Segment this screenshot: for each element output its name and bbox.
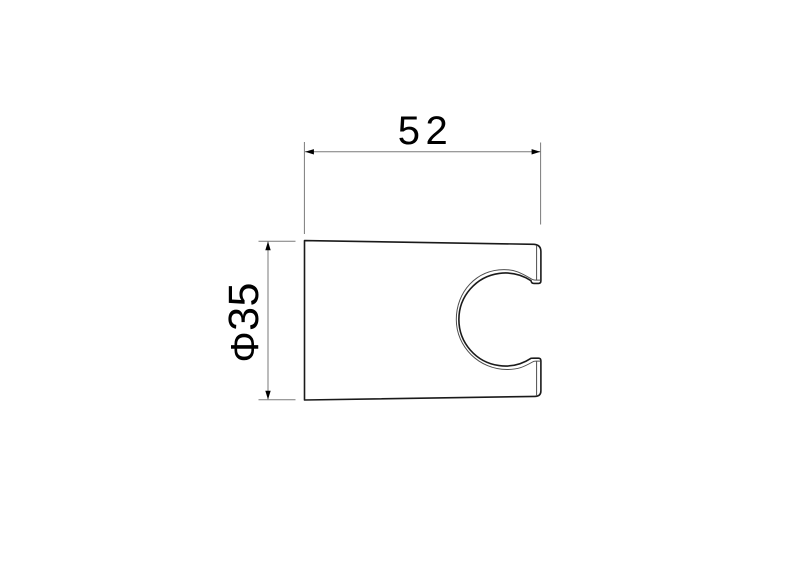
svg-text:52: 52 bbox=[398, 109, 454, 153]
svg-text:Φ35: Φ35 bbox=[220, 282, 268, 362]
